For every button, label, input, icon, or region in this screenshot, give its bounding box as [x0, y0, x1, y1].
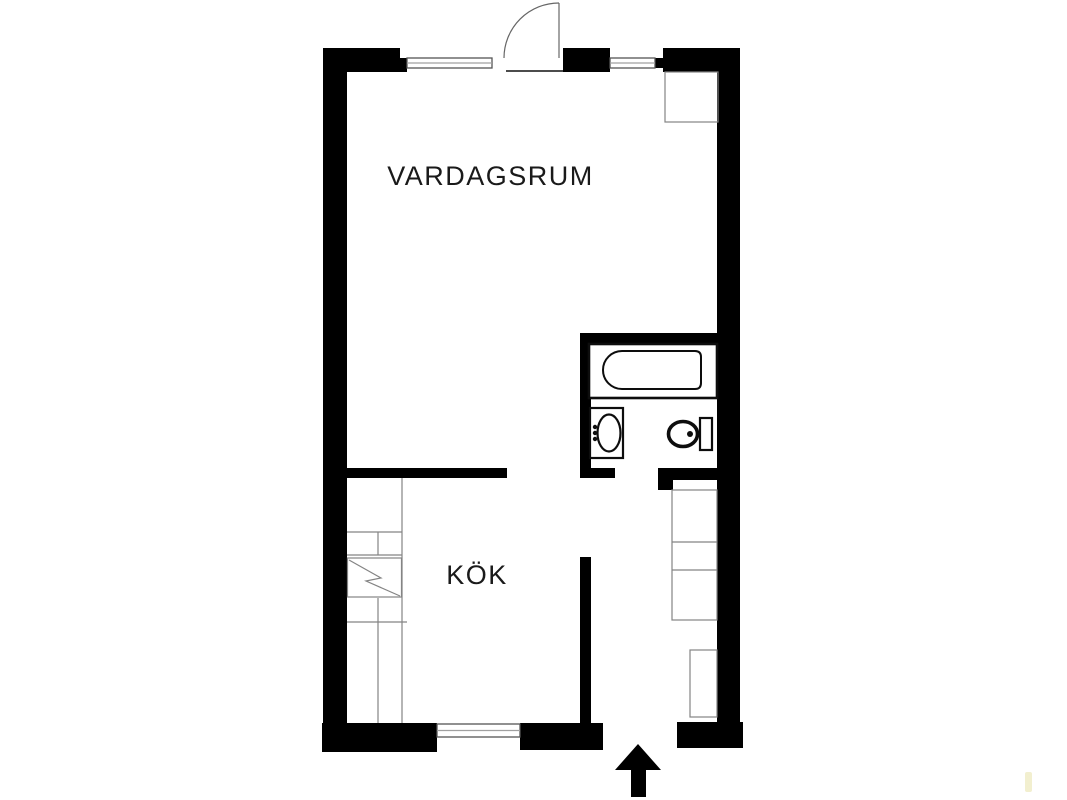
wall-right — [717, 48, 740, 748]
wall-bottom-mid-block — [520, 723, 603, 750]
stove-zigzag — [349, 560, 400, 596]
window-bottom — [437, 724, 520, 737]
door-arc — [504, 3, 559, 58]
bathtub-icon — [589, 344, 717, 398]
wall-bottom-left-block — [322, 723, 437, 752]
wall-bath-bottom-stub-left — [591, 468, 615, 478]
wall-livingroom-kitchen — [345, 468, 507, 478]
walls — [322, 48, 743, 752]
wall-top-mullion-left — [397, 58, 407, 72]
wall-kitchen-hall — [580, 557, 591, 723]
kitchen-cabinets — [347, 478, 407, 723]
wall-bottom-right-block — [677, 722, 743, 748]
tall-cabinet — [690, 650, 717, 717]
room-label-living-room: VARDAGSRUM — [368, 161, 613, 192]
wall-bath-top — [580, 333, 740, 343]
closet-living-room-corner — [665, 72, 718, 122]
window-top-right — [610, 58, 655, 68]
entrance-arrow-icon — [615, 744, 661, 797]
room-label-kitchen: KÖK — [417, 560, 537, 591]
wall-top-pier — [563, 48, 610, 72]
wall-left — [323, 48, 347, 752]
bathroom-fixtures — [589, 344, 717, 458]
wall-top-mullion-right — [655, 58, 663, 68]
entry-door-swing — [504, 3, 563, 71]
floor-plan-canvas: VARDAGSRUM KÖK — [0, 0, 1067, 800]
washbasin-icon — [590, 408, 623, 458]
wardrobe-block — [672, 490, 717, 620]
toilet-icon — [669, 418, 713, 450]
wall-bath-corner-stub — [658, 468, 673, 490]
scan-artifact — [1025, 772, 1032, 792]
wall-top-left-block — [323, 48, 400, 72]
window-top-left — [407, 58, 492, 68]
floor-plan-drawing — [0, 0, 1067, 800]
